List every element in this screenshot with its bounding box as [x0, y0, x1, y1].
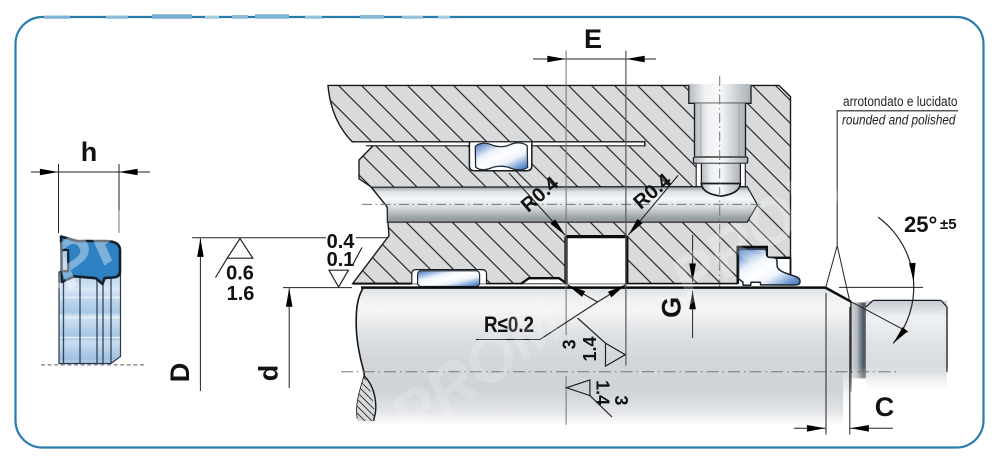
svg-text:arrotondato e lucidato: arrotondato e lucidato	[843, 94, 958, 109]
svg-text:±5: ±5	[940, 216, 957, 233]
svg-text:rounded and polished: rounded and polished	[842, 113, 956, 128]
svg-text:E: E	[584, 24, 602, 54]
svg-text:0.1: 0.1	[327, 249, 355, 271]
svg-text:0.6: 0.6	[226, 263, 254, 285]
svg-text:3: 3	[611, 395, 631, 405]
svg-text:h: h	[81, 137, 98, 167]
svg-text:C: C	[875, 392, 895, 422]
svg-text:1.4: 1.4	[580, 336, 600, 361]
svg-text:25°: 25°	[904, 212, 937, 237]
svg-text:D: D	[165, 363, 195, 383]
svg-text:1.6: 1.6	[227, 283, 255, 305]
svg-text:d: d	[254, 365, 284, 382]
svg-text:G: G	[657, 297, 687, 318]
